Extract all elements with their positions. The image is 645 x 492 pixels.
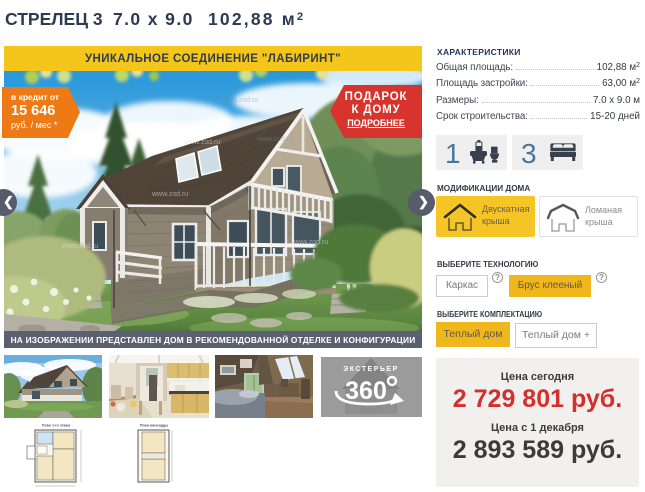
svg-text:www.zod.ru: www.zod.ru [61, 243, 98, 250]
svg-text:План мансарды: План мансарды [140, 424, 168, 428]
svg-text:www.zod.ru: www.zod.ru [221, 97, 258, 104]
svg-text:www.zod.ru: www.zod.ru [256, 136, 293, 143]
svg-text:www.zod.ru: www.zod.ru [291, 239, 328, 246]
svg-text:План 1-го этажа: План 1-го этажа [42, 424, 71, 428]
svg-text:ЭКСТЕРЬЕР: ЭКСТЕРЬЕР [343, 366, 399, 373]
svg-text:www.zod.ru: www.zod.ru [151, 191, 188, 198]
svg-text:www.zod.ru: www.zod.ru [183, 139, 220, 146]
svg-text:360: 360 [345, 377, 387, 405]
